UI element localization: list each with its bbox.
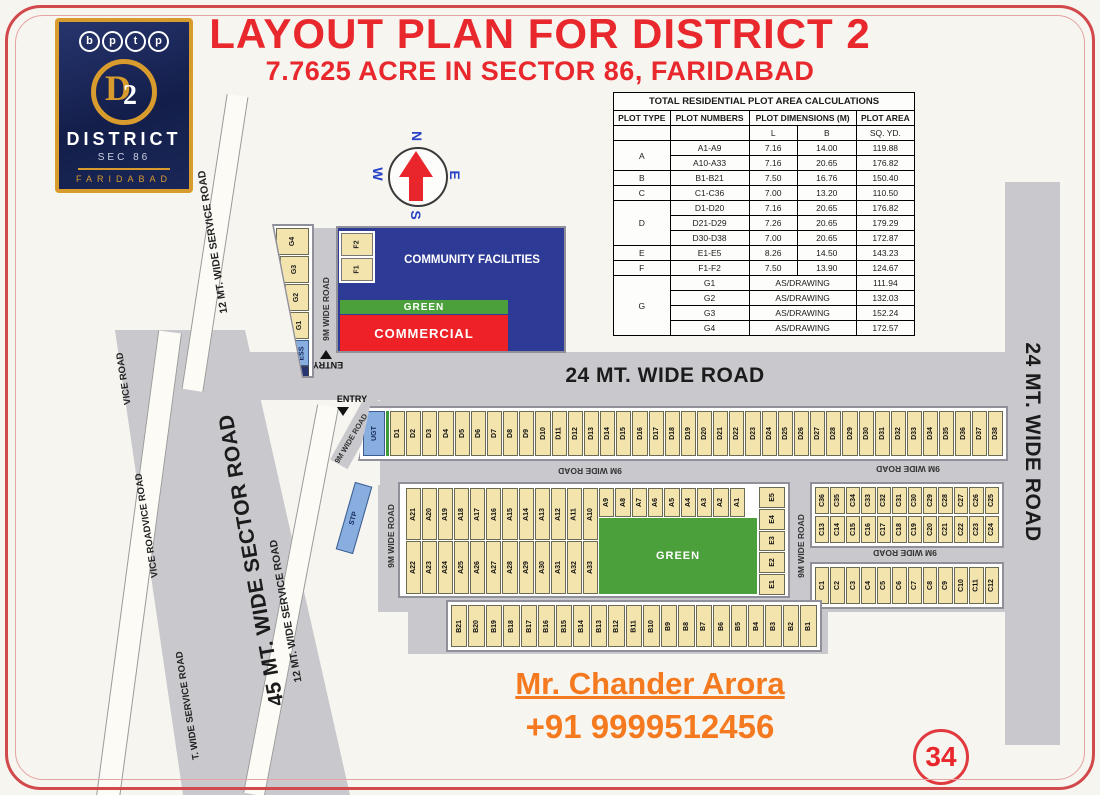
cell-plot-numbers: G4 <box>670 321 749 336</box>
compass-north-arrow-icon <box>399 151 433 177</box>
road-label-9m-ec: 9M WIDE ROAD <box>796 491 806 601</box>
plot-b2: B2 <box>783 605 799 647</box>
plot-a15: A15 <box>502 488 517 540</box>
cell-plot-numbers: C1-C36 <box>670 186 749 201</box>
plot-b5: B5 <box>731 605 747 647</box>
cell-area: 176.82 <box>856 156 914 171</box>
plot-a1: A1 <box>730 488 745 517</box>
cell-plot-numbers: G1 <box>670 276 749 291</box>
plot-b11: B11 <box>626 605 642 647</box>
plot-e2: E2 <box>759 552 785 573</box>
cell-plot-type: F <box>614 261 671 276</box>
cell-plot-numbers: G3 <box>670 306 749 321</box>
plot-a8: A8 <box>615 488 630 517</box>
plot-d34: D34 <box>923 411 938 456</box>
block-d-row: UGT D1D2D3D4D5D6D7D8D9D10D11D12D13D14D15… <box>358 406 1008 461</box>
plot-d32: D32 <box>891 411 906 456</box>
brand-letter: t <box>125 31 146 52</box>
cell-plot-type: C <box>614 186 671 201</box>
plot-c22: C22 <box>954 516 968 543</box>
cell-area: 172.57 <box>856 321 914 336</box>
plot-c9: C9 <box>938 567 952 604</box>
cell-area: 143.23 <box>856 246 914 261</box>
plot-area-table: TOTAL RESIDENTIAL PLOT AREA CALCULATIONS… <box>613 92 915 336</box>
plot-d18: D18 <box>665 411 680 456</box>
plot-c28: C28 <box>938 487 952 514</box>
plot-c17: C17 <box>877 516 891 543</box>
plot-c11: C11 <box>969 567 983 604</box>
table-row: AA1-A97.1614.00119.88 <box>614 141 915 156</box>
cell-plot-numbers: A10-A33 <box>670 156 749 171</box>
block-c-upper: C36C35C34C33C32C31C30C29C28C27C26C25 C13… <box>810 482 1004 548</box>
cell-l: 7.00 <box>749 231 797 246</box>
logo-sector-text: SEC 86 <box>59 152 189 163</box>
layout-plan-poster: 24 MT. WIDE ROAD 24 MT. WIDE ROAD 45 MT.… <box>0 0 1100 795</box>
cell-dimensions: AS/DRAWING <box>749 291 856 306</box>
poster-title: LAYOUT PLAN FOR DISTRICT 2 7.7625 ACRE I… <box>190 12 890 87</box>
plot-c20: C20 <box>923 516 937 543</box>
bptp-brand-mark: bptp <box>59 31 189 52</box>
plot-d35: D35 <box>939 411 954 456</box>
plot-a33: A33 <box>583 541 598 594</box>
entry-label-bottom: ENTRY <box>327 394 377 404</box>
cell-b: 20.65 <box>797 231 856 246</box>
compass-arrow-stem <box>409 175 423 201</box>
plot-c29: C29 <box>923 487 937 514</box>
plot-b18: B18 <box>503 605 519 647</box>
road-label-24mt-vertical: 24 MT. WIDE ROAD <box>1020 332 1044 552</box>
cell-area: 124.67 <box>856 261 914 276</box>
plot-d20: D20 <box>697 411 712 456</box>
cell-plot-numbers: D21-D29 <box>670 216 749 231</box>
plot-c2: C2 <box>830 567 844 604</box>
plot-d3: D3 <box>422 411 437 456</box>
cell-b: 20.65 <box>797 201 856 216</box>
plot-d1: D1 <box>390 411 405 456</box>
cell-plot-type: D <box>614 201 671 246</box>
entry-arrow-top <box>320 350 332 359</box>
a-top-strip: A21A20A19A18A17A16A15A14A13A12A11A10 <box>406 488 598 540</box>
plot-d25: D25 <box>778 411 793 456</box>
plot-a10: A10 <box>583 488 598 540</box>
cell-b: 14.00 <box>797 141 856 156</box>
plot-d4: D4 <box>438 411 453 456</box>
plot-b16: B16 <box>538 605 554 647</box>
plot-g3: G3 <box>280 256 309 283</box>
plot-d9: D9 <box>519 411 534 456</box>
plot-d30: D30 <box>859 411 874 456</box>
cell-plot-type: G <box>614 276 671 336</box>
d-plot-strip: D1D2D3D4D5D6D7D8D9D10D11D12D13D14D15D16D… <box>390 411 1003 456</box>
cell-area: 172.87 <box>856 231 914 246</box>
plot-d2: D2 <box>406 411 421 456</box>
a-bottom-strip: A22A23A24A25A26A27A28A29A30A31A32A33 <box>406 541 598 594</box>
plot-d27: D27 <box>810 411 825 456</box>
e-column-strip: E5E4E3E2E1 <box>759 487 785 595</box>
plot-c26: C26 <box>969 487 983 514</box>
plot-a20: A20 <box>422 488 437 540</box>
plot-d24: D24 <box>762 411 777 456</box>
col-dimensions: PLOT DIMENSIONS (M) <box>749 111 856 126</box>
logo-city-text: FARIDABAD <box>59 174 189 184</box>
cell-b: 13.20 <box>797 186 856 201</box>
plot-a30: A30 <box>535 541 550 594</box>
road-label-9m-g: 9M WIDE ROAD <box>321 254 331 364</box>
plot-a22: A22 <box>406 541 421 594</box>
cell-l: 7.26 <box>749 216 797 231</box>
table-cell <box>614 126 671 141</box>
plot-d19: D19 <box>681 411 696 456</box>
cell-plot-numbers: G2 <box>670 291 749 306</box>
title-line-2: 7.7625 ACRE IN SECTOR 86, FARIDABAD <box>190 56 890 87</box>
logo-district-text: DISTRICT <box>59 129 189 150</box>
plot-d8: D8 <box>503 411 518 456</box>
road-label-24mt-horizontal: 24 MT. WIDE ROAD <box>490 364 840 388</box>
road-label-9m-under-d-right: 9M WIDE ROAD <box>863 464 953 474</box>
plot-a19: A19 <box>438 488 453 540</box>
plot-f2: F2 <box>341 233 373 256</box>
compass-e: E <box>447 167 463 183</box>
cell-b: 13.90 <box>797 261 856 276</box>
plot-a12: A12 <box>551 488 566 540</box>
plot-a6: A6 <box>648 488 663 517</box>
cell-plot-numbers: D1-D20 <box>670 201 749 216</box>
plot-c14: C14 <box>830 516 844 543</box>
cell-plot-numbers: D30-D38 <box>670 231 749 246</box>
entry-arrow-bottom <box>337 407 349 416</box>
plot-a24: A24 <box>438 541 453 594</box>
zone-community-label: COMMUNITY FACILITIES <box>380 254 564 266</box>
plot-c31: C31 <box>892 487 906 514</box>
plot-a9: A9 <box>599 488 614 517</box>
cell-area: 150.40 <box>856 171 914 186</box>
plot-c16: C16 <box>861 516 875 543</box>
cell-area: 152.24 <box>856 306 914 321</box>
plot-c5: C5 <box>877 567 891 604</box>
table-row: BB1-B217.5016.76150.40 <box>614 171 915 186</box>
plot-c19: C19 <box>908 516 922 543</box>
plot-d37: D37 <box>972 411 987 456</box>
plot-d23: D23 <box>745 411 760 456</box>
road-label-9m-a-left: 9M WIDE ROAD <box>386 486 396 586</box>
col-sub-b: B <box>797 126 856 141</box>
contact-phone: +91 9999512456 <box>400 708 900 746</box>
plot-d16: D16 <box>632 411 647 456</box>
plot-a11: A11 <box>567 488 582 540</box>
plot-b14: B14 <box>573 605 589 647</box>
cell-l: 7.50 <box>749 261 797 276</box>
cell-plot-type: A <box>614 141 671 171</box>
table-row: FF1-F27.5013.90124.67 <box>614 261 915 276</box>
contact-block: Mr. Chander Arora +91 9999512456 <box>400 666 900 746</box>
cell-dimensions: AS/DRAWING <box>749 306 856 321</box>
plot-e4: E4 <box>759 509 785 530</box>
plot-b13: B13 <box>591 605 607 647</box>
block-b-row: B21B20B19B18B17B16B15B14B13B12B11B10B9B8… <box>446 600 822 652</box>
plot-c8: C8 <box>923 567 937 604</box>
plot-b8: B8 <box>678 605 694 647</box>
plot-c32: C32 <box>877 487 891 514</box>
plot-a27: A27 <box>486 541 501 594</box>
plot-b3: B3 <box>765 605 781 647</box>
plot-a5: A5 <box>664 488 679 517</box>
col-plot-type: PLOT TYPE <box>614 111 671 126</box>
cell-b: 14.50 <box>797 246 856 261</box>
road-label-9m-under-d-left: 9M WIDE ROAD <box>545 466 635 476</box>
page-number-badge: 34 <box>913 729 969 785</box>
cell-area: 119.88 <box>856 141 914 156</box>
plot-d5: D5 <box>455 411 470 456</box>
plot-b21: B21 <box>451 605 467 647</box>
cell-area: 176.82 <box>856 201 914 216</box>
block-a-green-e: A21A20A19A18A17A16A15A14A13A12A11A10 A9A… <box>398 482 790 598</box>
plot-d12: D12 <box>568 411 583 456</box>
brand-letter: b <box>79 31 100 52</box>
plot-a23: A23 <box>422 541 437 594</box>
plot-e1: E1 <box>759 574 785 595</box>
block-community-facilities: F2 F1 COMMUNITY FACILITIES GREEN COMMERC… <box>336 226 566 353</box>
plot-d38: D38 <box>988 411 1003 456</box>
plot-a18: A18 <box>454 488 469 540</box>
cell-l: 7.16 <box>749 156 797 171</box>
plot-b6: B6 <box>713 605 729 647</box>
plot-b17: B17 <box>521 605 537 647</box>
plot-a2: A2 <box>713 488 728 517</box>
plot-b20: B20 <box>468 605 484 647</box>
plot-a7: A7 <box>632 488 647 517</box>
plot-c10: C10 <box>954 567 968 604</box>
cell-plot-type: B <box>614 171 671 186</box>
c-mid-strip: C13C14C15C16C17C18C19C20C21C22C23C24 <box>815 516 999 543</box>
plot-c36: C36 <box>815 487 829 514</box>
plot-d17: D17 <box>649 411 664 456</box>
plot-b1: B1 <box>800 605 816 647</box>
plot-g2: G2 <box>285 284 309 311</box>
plot-c6: C6 <box>892 567 906 604</box>
plot-d29: D29 <box>842 411 857 456</box>
plot-f1: F1 <box>341 258 373 281</box>
cell-dimensions: AS/DRAWING <box>749 276 856 291</box>
b-plot-strip: B21B20B19B18B17B16B15B14B13B12B11B10B9B8… <box>451 605 817 647</box>
cell-area: 111.94 <box>856 276 914 291</box>
plot-stp: STP <box>336 482 373 554</box>
cell-plot-type: E <box>614 246 671 261</box>
cell-b: 20.65 <box>797 216 856 231</box>
plot-c3: C3 <box>846 567 860 604</box>
plot-e3: E3 <box>759 531 785 552</box>
plot-d7: D7 <box>487 411 502 456</box>
plot-d13: D13 <box>584 411 599 456</box>
plot-d14: D14 <box>600 411 615 456</box>
cell-l: 8.26 <box>749 246 797 261</box>
plot-d28: D28 <box>826 411 841 456</box>
plot-b12: B12 <box>608 605 624 647</box>
plot-a14: A14 <box>519 488 534 540</box>
cell-dimensions: AS/DRAWING <box>749 321 856 336</box>
zone-green-strip: GREEN <box>340 300 508 314</box>
plot-a16: A16 <box>486 488 501 540</box>
plot-b10: B10 <box>643 605 659 647</box>
plot-a13: A13 <box>535 488 550 540</box>
plot-d36: D36 <box>955 411 970 456</box>
plot-a17: A17 <box>470 488 485 540</box>
col-plot-numbers: PLOT NUMBERS <box>670 111 749 126</box>
table-row: GG1AS/DRAWING111.94 <box>614 276 915 291</box>
cell-plot-numbers: F1-F2 <box>670 261 749 276</box>
plot-e5: E5 <box>759 487 785 508</box>
col-plot-area: PLOT AREA <box>856 111 914 126</box>
cell-b: 16.76 <box>797 171 856 186</box>
zone-commercial: COMMERCIAL <box>340 315 508 351</box>
plot-g4: G4 <box>276 228 309 255</box>
plot-a28: A28 <box>502 541 517 594</box>
plot-g1: G1 <box>290 312 309 339</box>
plot-d33: D33 <box>907 411 922 456</box>
compass-n: N <box>409 128 425 144</box>
plot-c18: C18 <box>892 516 906 543</box>
plot-c21: C21 <box>938 516 952 543</box>
plot-c33: C33 <box>861 487 875 514</box>
plot-a26: A26 <box>470 541 485 594</box>
col-sub-area: SQ. YD. <box>856 126 914 141</box>
table-row: DD1-D207.1620.65176.82 <box>614 201 915 216</box>
plot-a32: A32 <box>567 541 582 594</box>
plot-c25: C25 <box>985 487 999 514</box>
table-row: EE1-E58.2614.50143.23 <box>614 246 915 261</box>
cell-l: 7.00 <box>749 186 797 201</box>
plot-d26: D26 <box>794 411 809 456</box>
cell-area: 132.03 <box>856 291 914 306</box>
plot-c23: C23 <box>969 516 983 543</box>
table-cell <box>670 126 749 141</box>
plot-d11: D11 <box>552 411 567 456</box>
plot-c35: C35 <box>830 487 844 514</box>
plot-c34: C34 <box>846 487 860 514</box>
c-top-strip: C36C35C34C33C32C31C30C29C28C27C26C25 <box>815 487 999 514</box>
plot-b19: B19 <box>486 605 502 647</box>
cell-l: 7.16 <box>749 201 797 216</box>
plot-c24: C24 <box>985 516 999 543</box>
plot-c1: C1 <box>815 567 829 604</box>
plot-c13: C13 <box>815 516 829 543</box>
block-c-lower: C1C2C3C4C5C6C7C8C9C10C11C12 <box>810 562 1004 609</box>
plot-d21: D21 <box>713 411 728 456</box>
emblem-number-2: 2 <box>123 82 137 110</box>
cell-plot-numbers: B1-B21 <box>670 171 749 186</box>
col-sub-l: L <box>749 126 797 141</box>
green-sliver <box>386 411 389 456</box>
plot-d22: D22 <box>729 411 744 456</box>
cell-l: 7.16 <box>749 141 797 156</box>
plot-a31: A31 <box>551 541 566 594</box>
road-label-9m-c: 9M WIDE ROAD <box>860 548 950 558</box>
plot-c7: C7 <box>908 567 922 604</box>
cell-area: 110.50 <box>856 186 914 201</box>
table-row: CC1-C367.0013.20110.50 <box>614 186 915 201</box>
table-title: TOTAL RESIDENTIAL PLOT AREA CALCULATIONS <box>614 93 915 111</box>
cell-l: 7.50 <box>749 171 797 186</box>
c-bottom-strip: C1C2C3C4C5C6C7C8C9C10C11C12 <box>815 567 999 604</box>
contact-name: Mr. Chander Arora <box>400 666 900 702</box>
cell-plot-numbers: A1-A9 <box>670 141 749 156</box>
plot-c12: C12 <box>985 567 999 604</box>
plot-a4: A4 <box>681 488 696 517</box>
a-short-strip: A9A8A7A6A5A4A3A2A1 <box>599 488 745 517</box>
plot-c27: C27 <box>954 487 968 514</box>
logo-divider <box>78 168 170 170</box>
compass-s: S <box>408 207 424 223</box>
brand-letter: p <box>102 31 123 52</box>
cell-plot-numbers: E1-E5 <box>670 246 749 261</box>
plot-a3: A3 <box>697 488 712 517</box>
plot-d31: D31 <box>875 411 890 456</box>
plot-b15: B15 <box>556 605 572 647</box>
compass-w: W <box>370 166 386 182</box>
d2-emblem: D 2 <box>91 59 157 125</box>
plot-b7: B7 <box>696 605 712 647</box>
plot-a25: A25 <box>454 541 469 594</box>
cell-b: 20.65 <box>797 156 856 171</box>
plot-d15: D15 <box>616 411 631 456</box>
plot-c30: C30 <box>908 487 922 514</box>
zone-green-big: GREEN <box>599 518 757 594</box>
brand-letter: p <box>148 31 169 52</box>
plot-b4: B4 <box>748 605 764 647</box>
plot-a21: A21 <box>406 488 421 540</box>
plot-a29: A29 <box>519 541 534 594</box>
plot-c15: C15 <box>846 516 860 543</box>
plot-b9: B9 <box>661 605 677 647</box>
title-line-1: LAYOUT PLAN FOR DISTRICT 2 <box>190 12 890 56</box>
cell-area: 179.29 <box>856 216 914 231</box>
bptp-district2-logo: bptp D 2 DISTRICT SEC 86 FARIDABAD <box>55 18 193 193</box>
plot-d10: D10 <box>535 411 550 456</box>
plot-d6: D6 <box>471 411 486 456</box>
plot-c4: C4 <box>861 567 875 604</box>
